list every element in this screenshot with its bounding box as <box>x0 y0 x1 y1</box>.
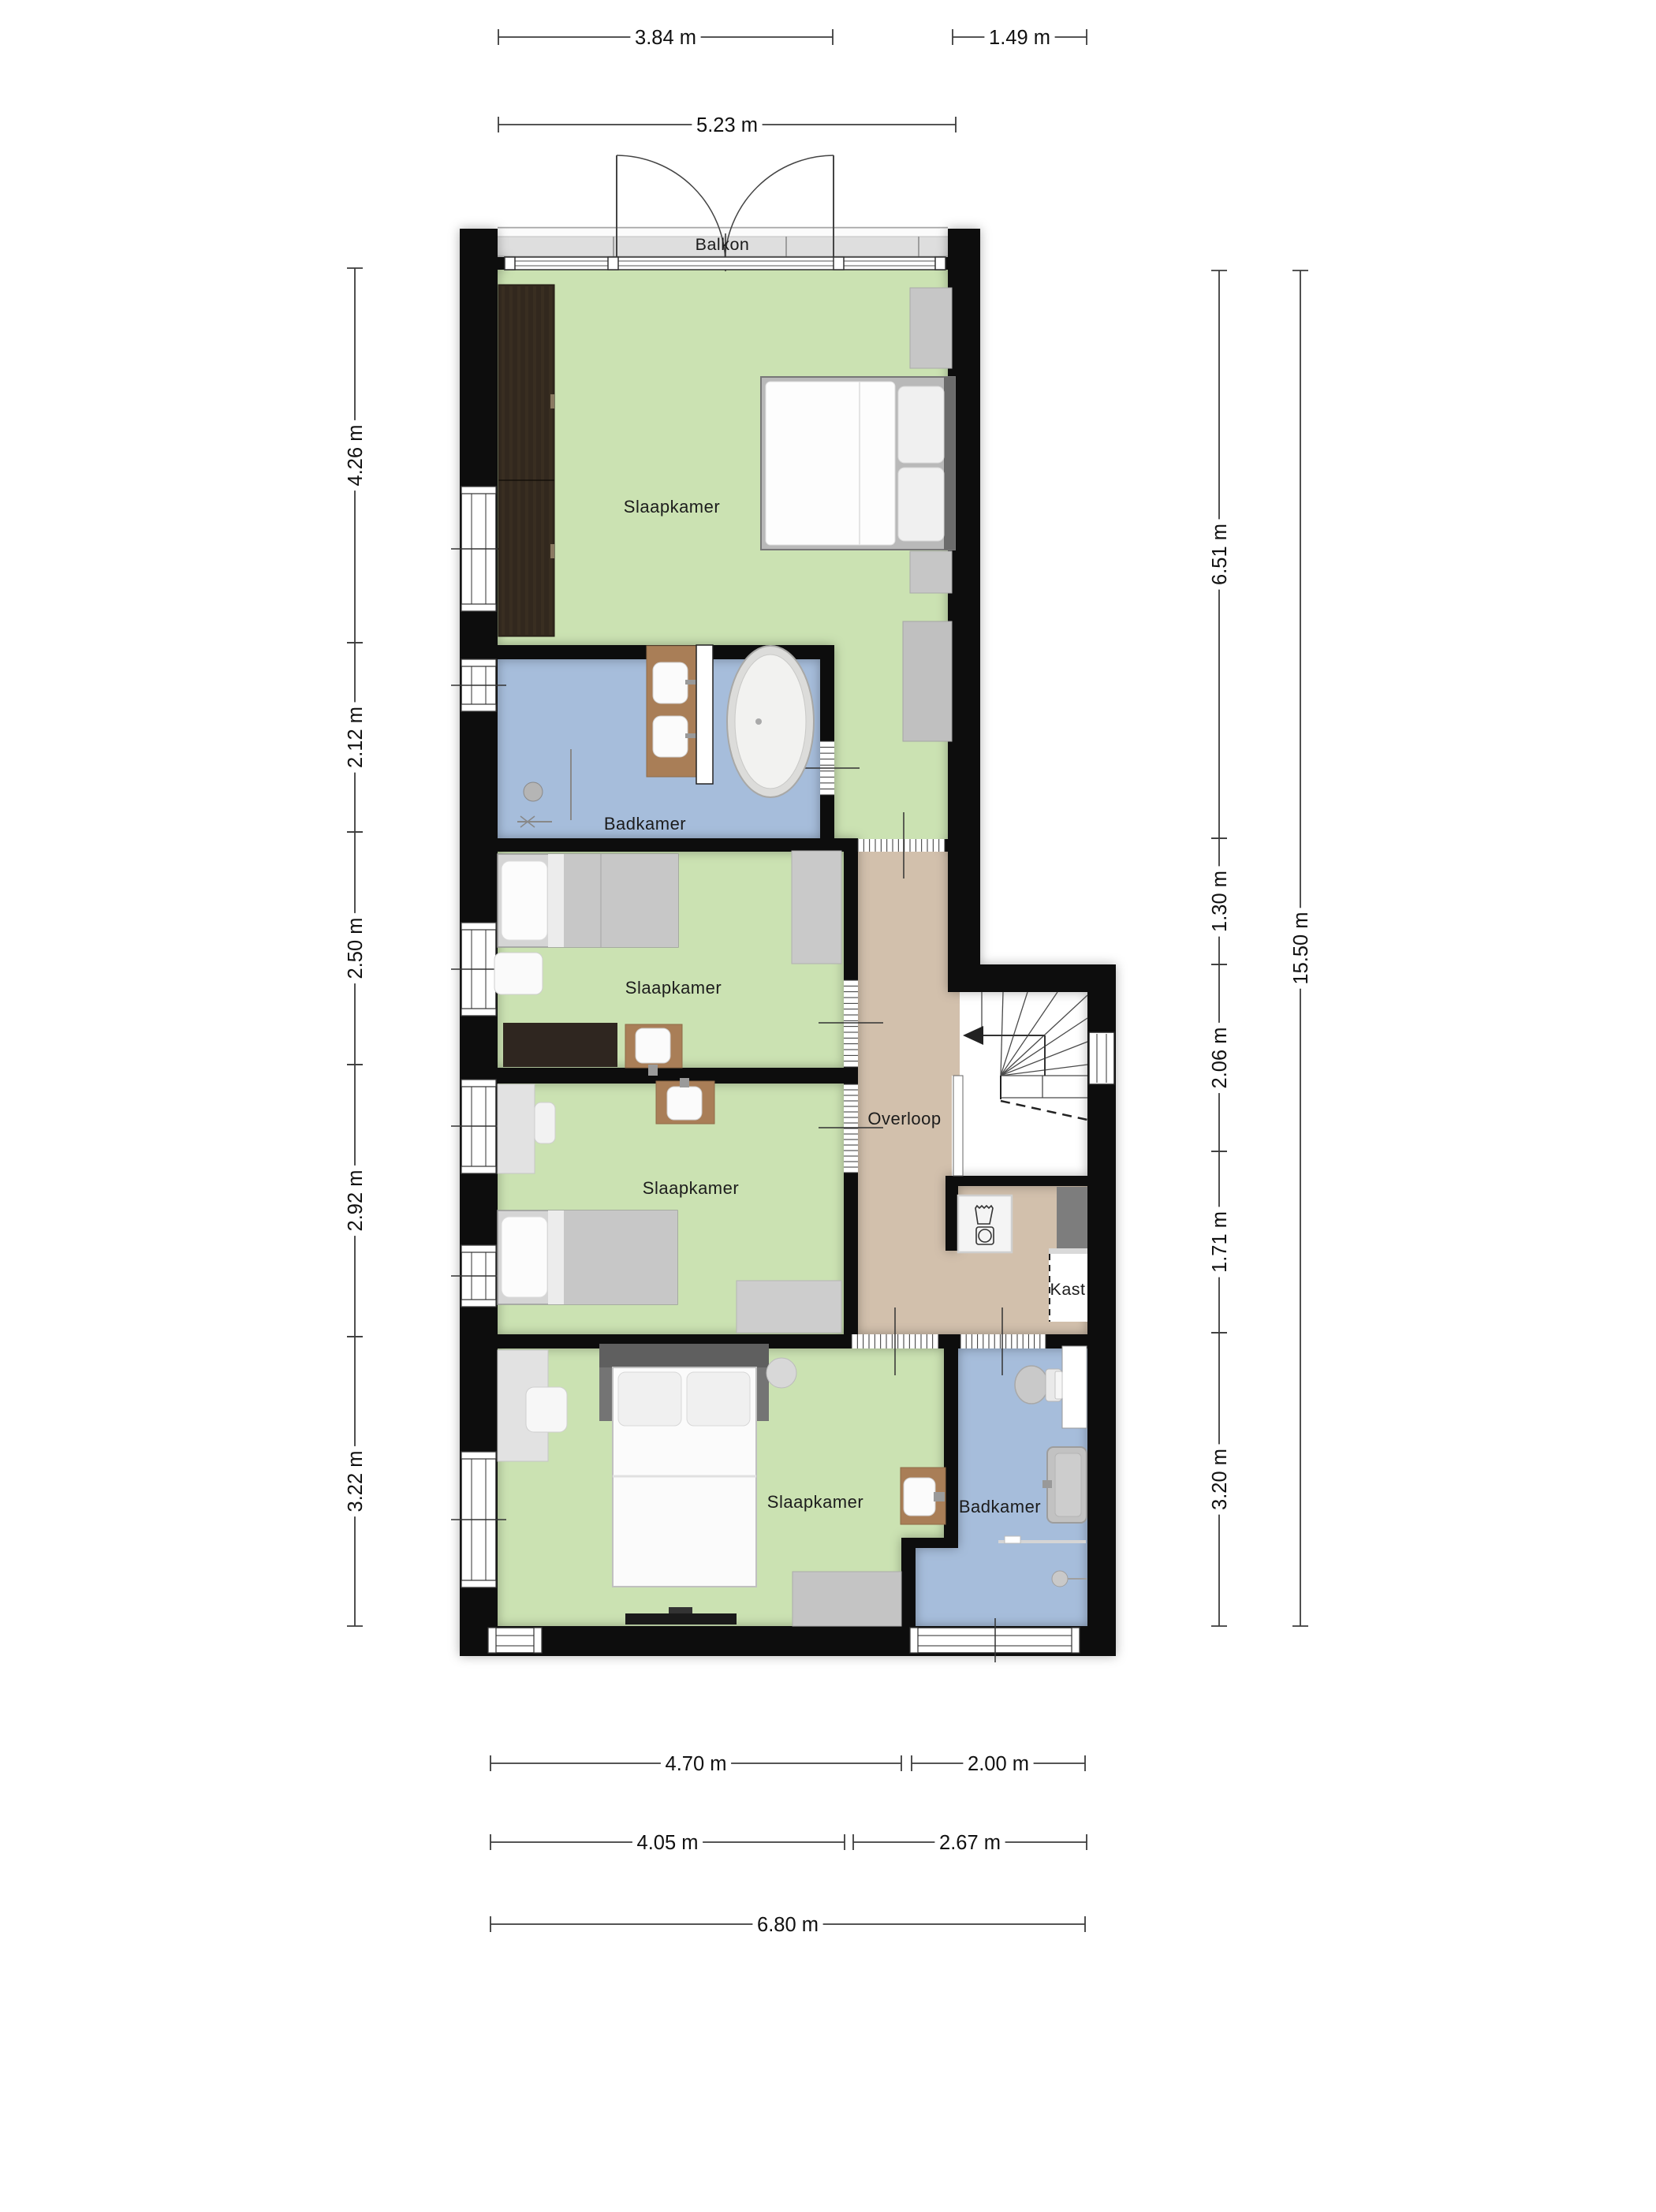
svg-text:Slaapkamer: Slaapkamer <box>643 1178 739 1198</box>
svg-text:15.50 m: 15.50 m <box>1290 912 1312 984</box>
svg-text:Overloop: Overloop <box>867 1109 941 1128</box>
svg-text:2.00 m: 2.00 m <box>968 1753 1029 1775</box>
svg-text:Slaapkamer: Slaapkamer <box>624 497 720 517</box>
svg-text:1.71 m: 1.71 m <box>1209 1211 1231 1273</box>
svg-text:2.92 m: 2.92 m <box>345 1170 367 1232</box>
svg-text:6.80 m: 6.80 m <box>757 1914 819 1936</box>
svg-text:4.70 m: 4.70 m <box>666 1753 727 1775</box>
svg-text:6.51 m: 6.51 m <box>1209 524 1231 585</box>
svg-text:1.30 m: 1.30 m <box>1209 871 1231 932</box>
svg-text:Slaapkamer: Slaapkamer <box>767 1492 863 1512</box>
svg-text:Kast: Kast <box>1050 1280 1085 1299</box>
svg-text:Badkamer: Badkamer <box>959 1497 1041 1516</box>
svg-text:2.50 m: 2.50 m <box>345 918 367 979</box>
svg-text:5.23 m: 5.23 m <box>696 114 758 136</box>
svg-text:2.06 m: 2.06 m <box>1209 1028 1231 1089</box>
svg-text:4.05 m: 4.05 m <box>637 1832 699 1854</box>
svg-text:Slaapkamer: Slaapkamer <box>625 978 722 998</box>
svg-text:Balkon: Balkon <box>696 235 750 254</box>
svg-text:4.26 m: 4.26 m <box>345 425 367 487</box>
svg-text:3.22 m: 3.22 m <box>345 1451 367 1513</box>
svg-text:2.67 m: 2.67 m <box>939 1832 1001 1854</box>
svg-text:3.84 m: 3.84 m <box>635 27 696 49</box>
svg-text:3.20 m: 3.20 m <box>1209 1449 1231 1510</box>
svg-text:2.12 m: 2.12 m <box>345 707 367 768</box>
svg-text:Badkamer: Badkamer <box>604 814 686 834</box>
svg-text:1.49 m: 1.49 m <box>989 27 1050 49</box>
